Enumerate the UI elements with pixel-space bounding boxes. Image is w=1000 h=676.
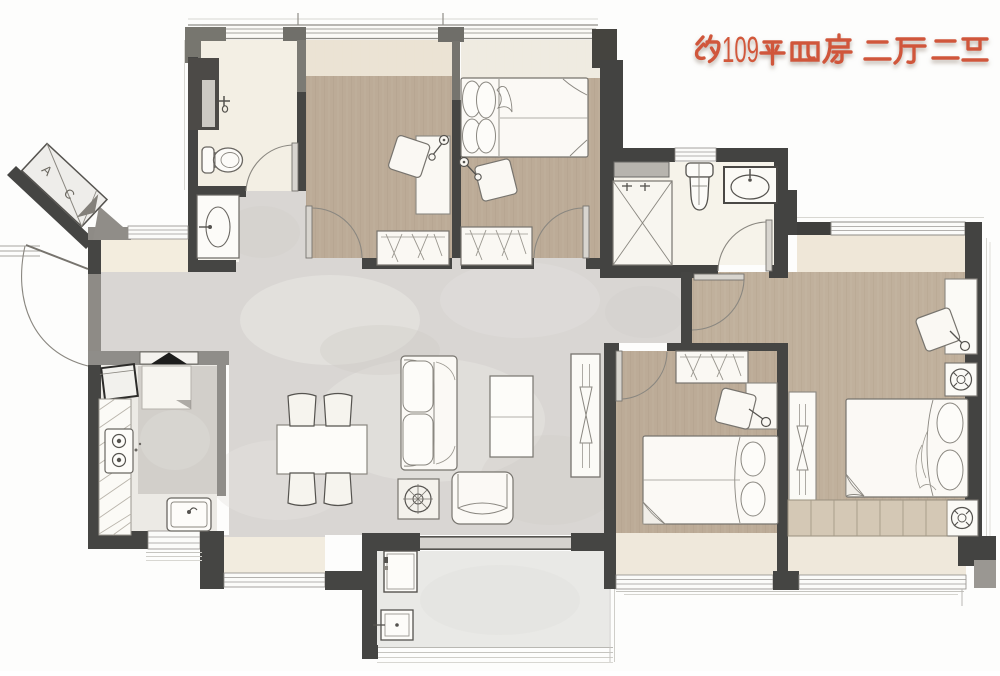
svg-text:109: 109 bbox=[722, 29, 759, 70]
